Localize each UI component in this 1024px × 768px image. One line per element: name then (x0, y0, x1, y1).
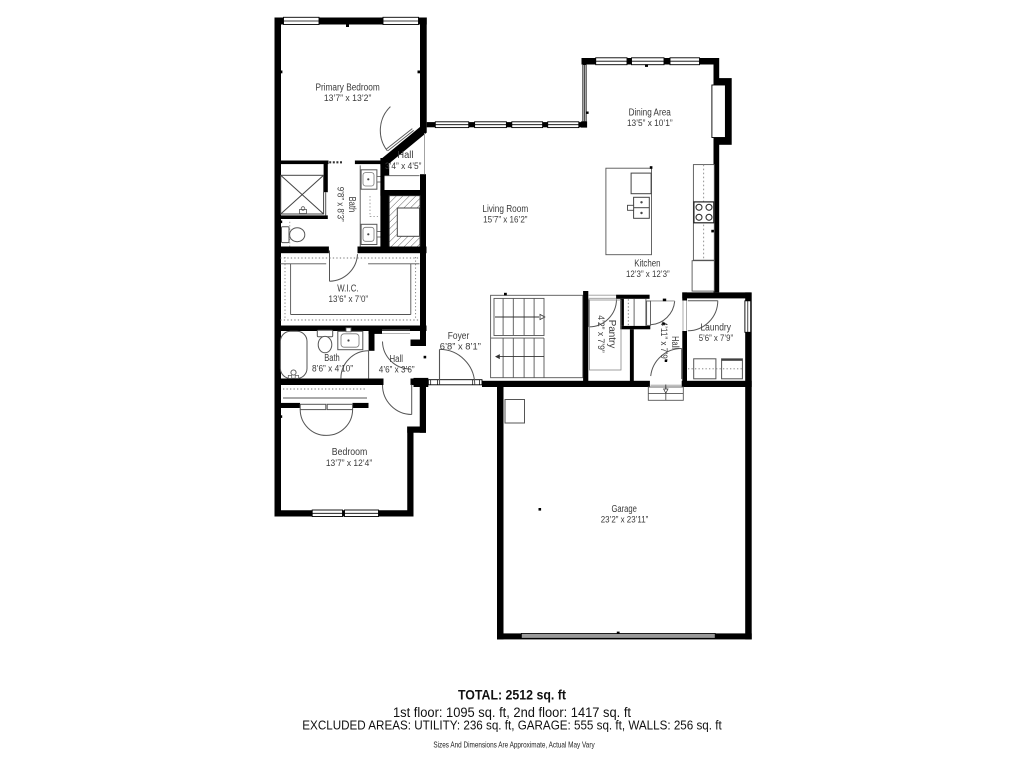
svg-text:13’7” x 12’4”: 13’7” x 12’4” (326, 458, 372, 469)
svg-text:Bath: Bath (346, 197, 357, 213)
svg-text:9’8” x 8’3”: 9’8” x 8’3” (335, 187, 346, 222)
svg-text:W.I.C.: W.I.C. (337, 283, 358, 294)
svg-text:4’6” x 3’6”: 4’6” x 3’6” (379, 365, 415, 376)
svg-text:6’8” x 8’1”: 6’8” x 8’1” (440, 341, 481, 352)
svg-text:13’5” x 10’1”: 13’5” x 10’1” (627, 118, 673, 129)
svg-text:Dining Area: Dining Area (629, 107, 672, 118)
svg-text:Kitchen: Kitchen (634, 258, 660, 269)
svg-text:12’3” x 12’3”: 12’3” x 12’3” (626, 269, 670, 280)
svg-text:13’7” x 13’2”: 13’7” x 13’2” (324, 93, 372, 104)
svg-text:Primary Bedroom: Primary Bedroom (315, 82, 379, 93)
svg-text:13’6” x 7’0”: 13’6” x 7’0” (329, 294, 369, 305)
svg-text:5’6” x 7’9”: 5’6” x 7’9” (699, 333, 733, 344)
svg-text:EXCLUDED AREAS: UTILITY: 236 s: EXCLUDED AREAS: UTILITY: 236 sq. ft, GAR… (302, 717, 722, 732)
svg-text:Living Room: Living Room (482, 204, 528, 215)
svg-text:Pantry: Pantry (606, 320, 617, 349)
svg-text:Sizes And Dimensions Are Appro: Sizes And Dimensions Are Approximate, Ac… (433, 740, 595, 750)
svg-text:Hall: Hall (669, 336, 680, 349)
svg-text:15’7” x 16’2”: 15’7” x 16’2” (483, 214, 527, 225)
svg-text:8’6” x 4’10”: 8’6” x 4’10” (312, 364, 353, 375)
svg-text:Garage: Garage (611, 504, 637, 515)
svg-text:4’11” x 7’9”: 4’11” x 7’9” (658, 322, 669, 362)
svg-text:Hall: Hall (397, 150, 413, 161)
svg-text:4’2” x 7’9”: 4’2” x 7’9” (595, 315, 606, 352)
svg-text:TOTAL: 2512 sq. ft: TOTAL: 2512 sq. ft (458, 688, 567, 703)
svg-text:23’2” x 23’11”: 23’2” x 23’11” (601, 515, 649, 526)
svg-text:Hall: Hall (389, 354, 403, 365)
svg-text:Bath: Bath (324, 353, 340, 364)
svg-text:Bedroom: Bedroom (332, 447, 368, 458)
svg-text:3’4” x 4’5”: 3’4” x 4’5” (385, 161, 422, 172)
svg-text:Laundry: Laundry (701, 323, 731, 334)
